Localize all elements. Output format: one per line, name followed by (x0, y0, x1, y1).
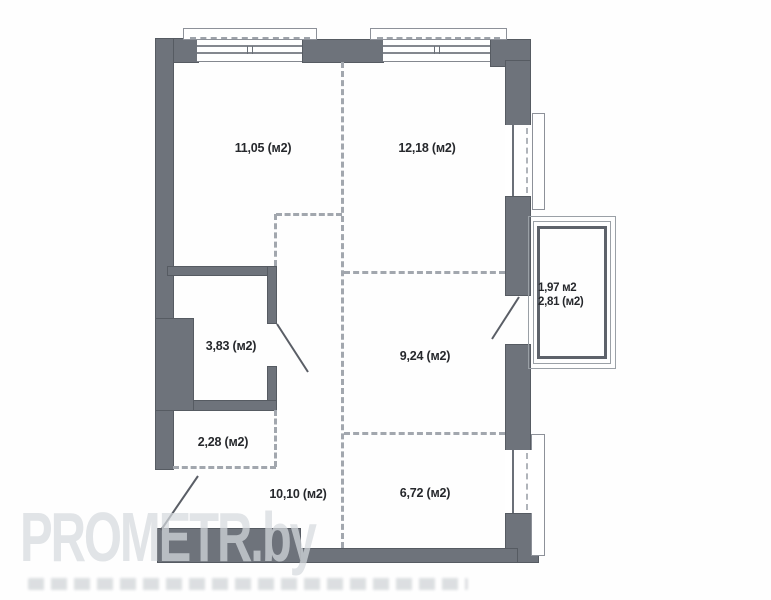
window-right-upper (505, 125, 532, 196)
window-mullion-tick (439, 46, 440, 54)
window-dashed-line (526, 128, 528, 193)
window-glazing-line (383, 52, 490, 54)
window-glazing-line (197, 45, 302, 47)
partition-dashed-closet-right (274, 410, 277, 467)
watermark-logo: PROMETR.by (20, 502, 315, 572)
window-frame-line (512, 450, 514, 513)
window-right-lower (505, 450, 532, 513)
window-sill-right-lower (531, 434, 545, 556)
sill-dashed-line (377, 37, 500, 39)
window-sill-top-right (370, 28, 507, 40)
sill-dashed-line (190, 37, 310, 39)
partition-dashed-hall-notch-v (274, 214, 277, 266)
room-label-2-28: 2,28 (м2) (198, 435, 249, 449)
window-glazing-line (383, 45, 490, 47)
partition-dashed-room2-room3 (344, 271, 505, 274)
window-dashed-line (526, 453, 528, 510)
illegible-watermark-caption (28, 578, 468, 590)
wall-bathroom-bottom (192, 400, 277, 411)
window-mullion-tick (247, 46, 248, 54)
partition-dashed-central (341, 62, 344, 548)
wall-bottom-right (300, 548, 518, 563)
wall-bathroom-right-lower (267, 366, 277, 402)
balcony-area-line2: 2,81 (м2) (538, 295, 583, 309)
room-label-6-72: 6,72 (м2) (400, 486, 451, 500)
wall-top-middle-pier (302, 39, 384, 63)
wall-bathroom-right-upper (267, 266, 277, 324)
window-sill-right-upper (532, 113, 545, 210)
bathroom-door-swing (277, 324, 308, 372)
window-sill-top-left (183, 28, 317, 40)
partition-dashed-closet-bottom (173, 466, 276, 469)
window-frame-line (512, 125, 514, 196)
balcony-area-line1: 1,97 м2 (538, 281, 583, 295)
window-glazing-line (197, 52, 302, 54)
partition-dashed-hall-notch-h (276, 213, 342, 216)
window-top-left (197, 40, 302, 62)
room-label-3-83: 3,83 (м2) (206, 339, 257, 353)
window-mullion-tick (252, 46, 253, 54)
balcony-area-label: 1,97 м2 2,81 (м2) (538, 281, 583, 309)
room-label-12-18: 12,18 (м2) (398, 141, 455, 155)
window-mullion-tick (434, 46, 435, 54)
wall-right-upper (505, 60, 531, 126)
wall-shaft (155, 318, 194, 411)
partition-dashed-room3-room4 (344, 432, 505, 435)
window-top-right (383, 40, 490, 62)
room-label-11-05: 11,05 (м2) (235, 141, 292, 155)
room-label-9-24: 9,24 (м2) (400, 349, 451, 363)
balcony-door-swing (492, 297, 519, 339)
floor-plan: 11,05 (м2) 12,18 (м2) 3,83 (м2) 9,24 (м2… (0, 0, 771, 600)
wall-bathroom-top (167, 266, 277, 276)
